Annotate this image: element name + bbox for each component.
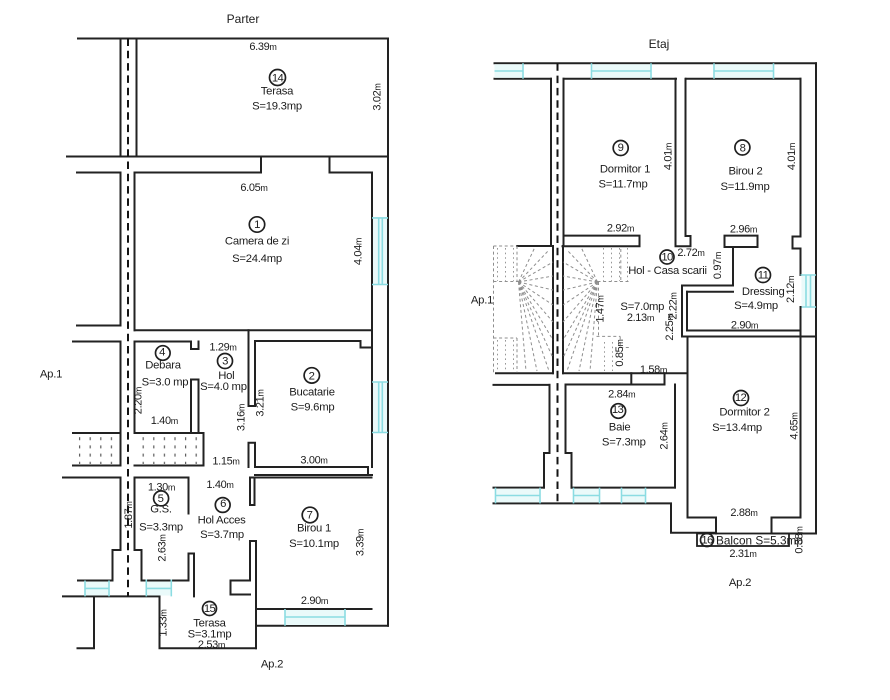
svg-text:2.90m: 2.90m <box>301 595 328 607</box>
svg-text:Dressing: Dressing <box>742 286 785 298</box>
svg-text:1.58m: 1.58m <box>640 364 667 376</box>
svg-text:2.84m: 2.84m <box>608 389 635 401</box>
svg-text:Hol - Casa scarii: Hol - Casa scarii <box>628 265 707 277</box>
svg-text:13: 13 <box>612 404 624 416</box>
svg-text:12: 12 <box>735 392 747 404</box>
svg-text:S=11.9mp: S=11.9mp <box>721 181 770 193</box>
svg-text:Terasa: Terasa <box>261 86 294 98</box>
svg-text:4.04m: 4.04m <box>353 238 365 265</box>
svg-text:S=4.0 mp: S=4.0 mp <box>200 381 247 393</box>
svg-text:9: 9 <box>618 142 624 154</box>
svg-text:1.40m: 1.40m <box>206 479 233 491</box>
svg-text:1.40m: 1.40m <box>151 415 178 427</box>
svg-text:1.15m: 1.15m <box>212 456 239 468</box>
svg-text:2.53m: 2.53m <box>198 639 225 651</box>
svg-text:S=11.7mp: S=11.7mp <box>599 179 648 191</box>
svg-text:S=4.9mp: S=4.9mp <box>734 300 778 312</box>
svg-text:6.39m: 6.39m <box>249 41 276 53</box>
svg-text:Ap.2: Ap.2 <box>261 659 283 671</box>
svg-text:S=3.3mp: S=3.3mp <box>139 522 183 534</box>
svg-text:3: 3 <box>222 356 228 368</box>
svg-text:1.33m: 1.33m <box>158 609 170 636</box>
svg-text:Baie: Baie <box>609 422 631 434</box>
svg-text:1.47m: 1.47m <box>595 295 607 322</box>
svg-text:7: 7 <box>307 510 313 522</box>
svg-text:11: 11 <box>758 270 769 282</box>
svg-text:Ap.2: Ap.2 <box>729 577 751 589</box>
svg-text:0.85m: 0.85m <box>614 339 626 366</box>
svg-text:3.02m: 3.02m <box>372 83 384 110</box>
svg-text:4.01m: 4.01m <box>786 143 798 170</box>
svg-text:2.92m: 2.92m <box>607 223 634 235</box>
svg-text:Etaj: Etaj <box>649 37 670 51</box>
svg-text:0.38m: 0.38m <box>794 526 806 553</box>
svg-text:Hol Acces: Hol Acces <box>198 514 247 526</box>
svg-text:2.12m: 2.12m <box>785 276 797 303</box>
svg-text:2.31m: 2.31m <box>729 548 756 560</box>
svg-text:0.97m: 0.97m <box>712 252 724 279</box>
svg-text:S=13.4mp: S=13.4mp <box>712 422 762 434</box>
svg-text:Balcon S=5.3mp: Balcon S=5.3mp <box>716 534 803 548</box>
svg-text:Birou 1: Birou 1 <box>297 523 331 535</box>
svg-text:S=19.3mp: S=19.3mp <box>252 101 302 113</box>
svg-text:S=24.4mp: S=24.4mp <box>232 253 282 265</box>
svg-text:Dormitor 1: Dormitor 1 <box>600 164 650 176</box>
svg-text:Ap.1: Ap.1 <box>40 369 62 381</box>
svg-text:4: 4 <box>159 347 165 359</box>
svg-text:14: 14 <box>272 73 284 85</box>
svg-text:15: 15 <box>204 603 216 615</box>
svg-text:3.21m: 3.21m <box>255 389 267 416</box>
svg-text:Debara: Debara <box>145 360 182 372</box>
svg-text:6: 6 <box>220 498 226 510</box>
svg-text:S=3.0 mp: S=3.0 mp <box>142 376 189 388</box>
svg-text:2.25m: 2.25m <box>664 313 676 340</box>
svg-text:G.S.: G.S. <box>150 504 172 516</box>
svg-text:4.65m: 4.65m <box>789 412 801 439</box>
svg-text:8: 8 <box>740 143 746 155</box>
svg-text:2.13m: 2.13m <box>627 312 654 324</box>
svg-text:Birou 2: Birou 2 <box>728 166 762 178</box>
svg-text:10: 10 <box>661 252 673 264</box>
svg-text:2.88m: 2.88m <box>730 507 757 519</box>
svg-text:2.20m: 2.20m <box>133 387 145 414</box>
svg-text:Ap.1: Ap.1 <box>471 295 493 307</box>
svg-text:2.63m: 2.63m <box>157 534 169 561</box>
svg-text:3.00m: 3.00m <box>300 455 327 467</box>
svg-text:1: 1 <box>254 219 260 231</box>
svg-text:6.05m: 6.05m <box>240 182 267 194</box>
svg-text:Parter: Parter <box>227 12 260 26</box>
svg-text:2.64m: 2.64m <box>659 422 671 449</box>
svg-text:S=3.7mp: S=3.7mp <box>200 529 244 541</box>
svg-text:2.72m: 2.72m <box>677 247 704 259</box>
svg-text:2.96m: 2.96m <box>730 224 757 236</box>
svg-text:Camera de zi: Camera de zi <box>225 236 289 248</box>
svg-text:Bucatarie: Bucatarie <box>289 387 334 399</box>
svg-text:S=7.3mp: S=7.3mp <box>602 436 646 448</box>
svg-text:S=9.6mp: S=9.6mp <box>291 402 335 414</box>
svg-text:S=10.1mp: S=10.1mp <box>289 538 339 550</box>
svg-text:16: 16 <box>701 535 713 547</box>
svg-text:3.16m: 3.16m <box>236 404 248 431</box>
svg-text:1.87m: 1.87m <box>123 501 135 528</box>
svg-text:4.01m: 4.01m <box>663 143 675 170</box>
svg-text:Dormitor 2: Dormitor 2 <box>719 407 769 419</box>
svg-text:1.29m: 1.29m <box>209 342 236 354</box>
svg-text:2.90m: 2.90m <box>731 320 758 332</box>
svg-text:2: 2 <box>309 371 315 383</box>
svg-text:3.39m: 3.39m <box>355 529 367 556</box>
